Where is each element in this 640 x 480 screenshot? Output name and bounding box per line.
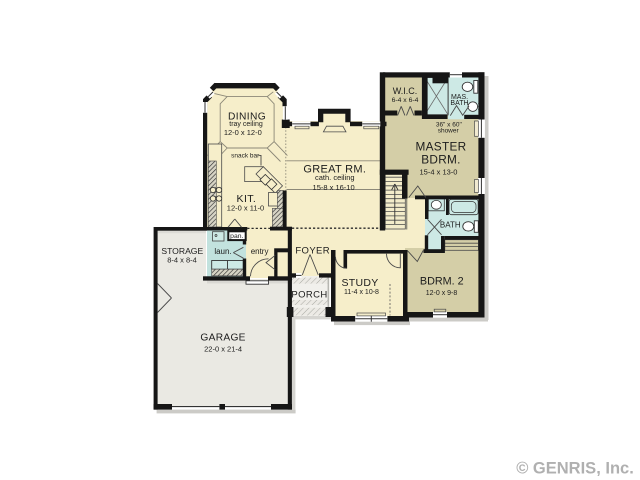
svg-text:pan.: pan. [230, 233, 243, 240]
svg-text:22-0 x 21-4: 22-0 x 21-4 [204, 345, 242, 354]
svg-text:BDRM. 2: BDRM. 2 [420, 275, 464, 287]
svg-text:PORCH: PORCH [291, 290, 327, 301]
svg-text:MASTER: MASTER [416, 140, 467, 154]
svg-text:BATH: BATH [440, 221, 461, 230]
svg-text:15-8 x 16-10: 15-8 x 16-10 [313, 183, 355, 192]
svg-text:BATH: BATH [450, 100, 468, 107]
svg-text:tray ceiling: tray ceiling [229, 121, 263, 128]
svg-text:15-4 x 13-0: 15-4 x 13-0 [420, 168, 458, 177]
svg-text:laun.: laun. [214, 247, 231, 256]
svg-text:© GENRIS, Inc.: © GENRIS, Inc. [516, 460, 634, 478]
svg-text:entry: entry [251, 247, 269, 256]
svg-text:shower: shower [438, 127, 460, 134]
svg-text:6-4 x 6-4: 6-4 x 6-4 [392, 97, 419, 104]
svg-text:8-4 x 8-4: 8-4 x 8-4 [167, 255, 197, 264]
svg-text:GARAGE: GARAGE [200, 333, 245, 344]
svg-text:12-0 x 12-0: 12-0 x 12-0 [224, 128, 262, 137]
svg-text:cath. ceiling: cath. ceiling [315, 173, 355, 182]
svg-text:W.I.C.: W.I.C. [393, 86, 418, 96]
svg-text:BDRM.: BDRM. [421, 153, 461, 167]
svg-text:12-0 x 9-8: 12-0 x 9-8 [426, 290, 458, 297]
svg-text:11-4 x 10-8: 11-4 x 10-8 [344, 289, 379, 296]
svg-text:STUDY: STUDY [341, 277, 378, 289]
svg-text:FOYER: FOYER [295, 246, 330, 257]
svg-text:snack bar: snack bar [231, 153, 260, 160]
svg-text:12-0 x 11-0: 12-0 x 11-0 [227, 204, 264, 213]
